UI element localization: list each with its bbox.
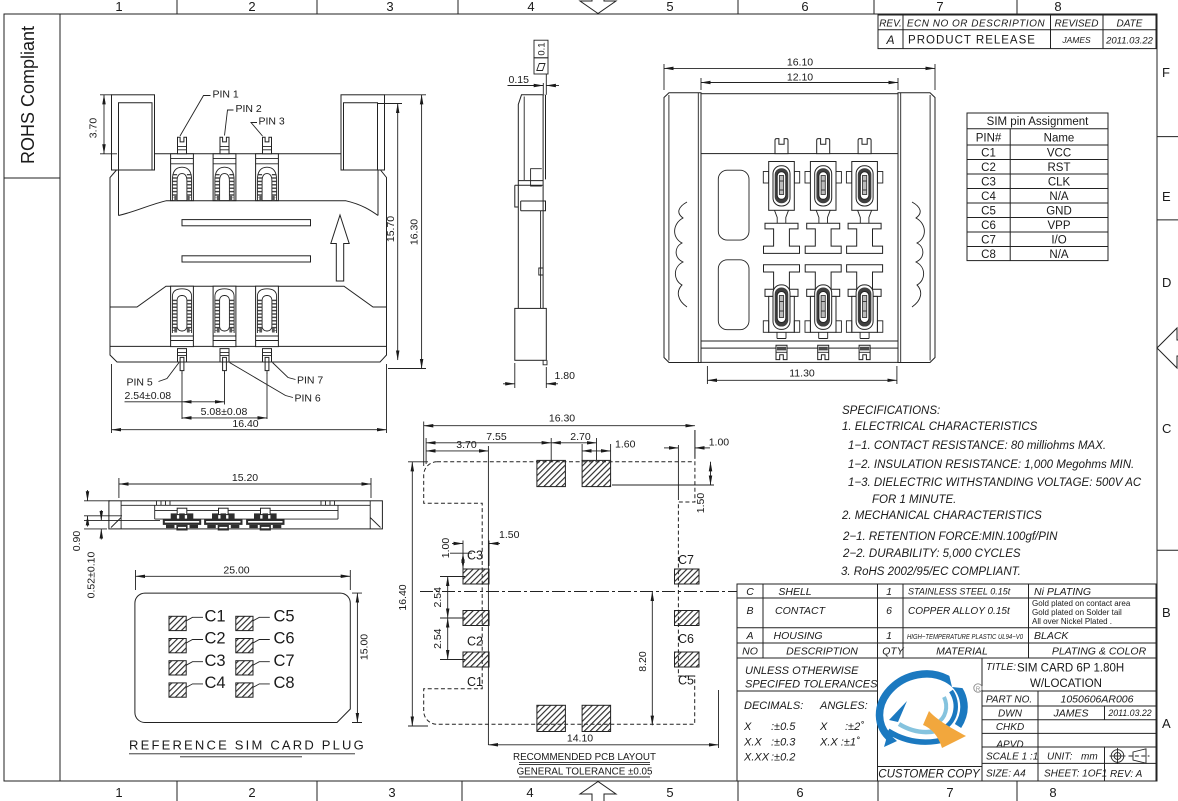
svg-text:C2: C2 — [981, 162, 996, 174]
svg-text:0.15: 0.15 — [509, 74, 530, 86]
svg-text:C6: C6 — [981, 220, 996, 232]
svg-text:5.08±0.08: 5.08±0.08 — [201, 406, 248, 418]
svg-text:15.00: 15.00 — [359, 634, 371, 660]
svg-text:GND: GND — [1046, 206, 1072, 218]
svg-text:16.30: 16.30 — [409, 219, 421, 245]
svg-text:2.70: 2.70 — [570, 431, 591, 443]
svg-text:3.70: 3.70 — [456, 439, 477, 451]
svg-text:COPPER ALLOY 0.15t: COPPER ALLOY 0.15t — [908, 606, 1011, 617]
svg-text:C5: C5 — [678, 674, 694, 688]
svg-text:C1: C1 — [205, 608, 226, 626]
svg-text:DECIMALS:: DECIMALS: — [744, 700, 803, 712]
svg-text:3.70: 3.70 — [88, 118, 100, 139]
svg-text:0.90: 0.90 — [71, 531, 83, 552]
svg-text:SIM pin Assignment: SIM pin Assignment — [987, 116, 1089, 128]
svg-text:ROHS Compliant: ROHS Compliant — [18, 26, 38, 164]
svg-text:RST: RST — [1048, 162, 1071, 174]
svg-text:D: D — [1162, 275, 1171, 290]
svg-text:A: A — [745, 630, 753, 642]
svg-text:PIN 7: PIN 7 — [297, 375, 323, 387]
svg-text:PIN#: PIN# — [976, 133, 1002, 145]
svg-text:APVD: APVD — [995, 740, 1023, 751]
svg-text:GENERAL TOLERANCE ±0.05: GENERAL TOLERANCE ±0.05 — [517, 767, 653, 778]
svg-text:DWN: DWN — [998, 709, 1023, 720]
svg-text:PIN 6: PIN 6 — [295, 393, 321, 405]
svg-text:C7: C7 — [274, 652, 295, 670]
svg-text:6: 6 — [796, 785, 803, 800]
svg-text:mm: mm — [1081, 752, 1098, 763]
svg-text:BLACK: BLACK — [1034, 630, 1069, 642]
svg-text:1: 1 — [115, 0, 122, 14]
svg-text:5: 5 — [666, 0, 673, 14]
svg-text:REFERENCE SIM CARD PLUG: REFERENCE SIM CARD PLUG — [129, 738, 366, 753]
svg-text:UNLESS OTHERWISE: UNLESS OTHERWISE — [745, 665, 859, 677]
svg-text:X: X — [743, 721, 752, 733]
svg-text:RECOMMENDED PCB LAYOUT: RECOMMENDED PCB LAYOUT — [513, 752, 656, 763]
svg-text:DATE: DATE — [1117, 19, 1143, 30]
svg-text:JAMES: JAMES — [1061, 35, 1091, 45]
svg-text:C: C — [1162, 421, 1171, 436]
svg-text:1.50: 1.50 — [695, 493, 707, 514]
svg-text:11.30: 11.30 — [789, 368, 815, 380]
svg-text:C8: C8 — [274, 674, 295, 692]
svg-text:CHKD: CHKD — [996, 722, 1024, 733]
svg-text:TITLE:: TITLE: — [986, 662, 1016, 673]
svg-text:REVISED: REVISED — [1055, 19, 1099, 30]
svg-text:6: 6 — [886, 605, 892, 617]
svg-text:2011.03.22: 2011.03.22 — [1107, 708, 1151, 718]
svg-text:PIN 3: PIN 3 — [259, 116, 285, 128]
svg-text:B: B — [746, 605, 753, 617]
svg-text:16.40: 16.40 — [397, 584, 409, 610]
svg-text:Name: Name — [1044, 133, 1075, 145]
svg-text:HIGH−TEMPERATURE PLASTIC UL94−: HIGH−TEMPERATURE PLASTIC UL94−V0 — [907, 632, 1024, 641]
svg-text:C7: C7 — [678, 553, 694, 567]
svg-text:16.10: 16.10 — [787, 57, 813, 69]
svg-text:3. RoHS 2002/95/EC COMPLIAN: 3. RoHS 2002/95/EC COMPLIANT. — [841, 566, 1021, 578]
svg-text:NO: NO — [742, 646, 758, 658]
svg-text:A: A — [885, 33, 894, 47]
svg-text:SIM CARD 6P 1.80H: SIM CARD 6P 1.80H — [1017, 663, 1124, 675]
svg-text:W/LOCATION: W/LOCATION — [1030, 678, 1102, 690]
svg-text:C3: C3 — [205, 652, 226, 670]
svg-text:7: 7 — [946, 785, 953, 800]
svg-text:PRODUCT RELEASE: PRODUCT RELEASE — [908, 35, 1036, 47]
svg-text:UNIT:: UNIT: — [1047, 752, 1073, 763]
svg-text:X: X — [819, 721, 828, 733]
svg-text:REV.: REV. — [879, 19, 902, 30]
svg-text:QTY: QTY — [882, 646, 905, 658]
svg-text:2. MECHANICAL CHARACTERISTIC: 2. MECHANICAL CHARACTERISTICS — [841, 510, 1042, 522]
svg-text:2: 2 — [248, 0, 255, 14]
svg-text:16.40: 16.40 — [232, 418, 258, 430]
svg-text:X.X: X.X — [743, 737, 762, 749]
svg-text:SPECIFICATIONS:: SPECIFICATIONS: — [842, 405, 940, 417]
svg-text:2.54±0.08: 2.54±0.08 — [125, 390, 172, 402]
svg-text:PIN 5: PIN 5 — [127, 377, 153, 389]
svg-text:15.20: 15.20 — [232, 472, 258, 484]
svg-text:4: 4 — [527, 0, 534, 14]
svg-text:ANGLES:: ANGLES: — [819, 700, 868, 712]
svg-text:2.54: 2.54 — [432, 587, 444, 608]
svg-text:1−3. DIELECTRIC WITHSTANDING: 1−3. DIELECTRIC WITHSTANDING VOLTAGE: 50… — [848, 477, 1142, 489]
svg-text:C1: C1 — [467, 675, 483, 689]
svg-text:CUSTOMER COPY: CUSTOMER COPY — [878, 769, 981, 781]
svg-text:1: 1 — [115, 785, 122, 800]
svg-text:1. ELECTRICAL CHARACTERISTIC: 1. ELECTRICAL CHARACTERISTICS — [842, 421, 1038, 433]
svg-text:14.10: 14.10 — [567, 733, 593, 745]
svg-text:C6: C6 — [274, 630, 295, 648]
svg-text:C2: C2 — [205, 630, 226, 648]
svg-text:C8: C8 — [981, 249, 996, 261]
svg-text:3: 3 — [386, 0, 393, 14]
svg-text:VPP: VPP — [1047, 220, 1070, 232]
svg-text:DESCRIPTION: DESCRIPTION — [786, 646, 858, 658]
svg-text:25.00: 25.00 — [223, 565, 249, 577]
svg-text:JAMES: JAMES — [1052, 708, 1088, 720]
svg-text:1.60: 1.60 — [615, 438, 636, 450]
svg-text:MATERIAL: MATERIAL — [936, 646, 988, 658]
svg-text:3: 3 — [388, 785, 395, 800]
svg-text:HOUSING: HOUSING — [773, 630, 822, 642]
svg-text::±2˚: :±2˚ — [845, 721, 864, 733]
svg-text:8.20: 8.20 — [637, 651, 649, 672]
svg-text:VCC: VCC — [1047, 148, 1071, 160]
svg-text:1050606AR006: 1050606AR006 — [1061, 694, 1134, 706]
svg-text:1−2. INSULATION RESISTANCE:: 1−2. INSULATION RESISTANCE: 1,000 Megohm… — [848, 459, 1134, 471]
svg-text:1−1. CONTACT RESISTANCE: 80: 1−1. CONTACT RESISTANCE: 80 milliohms MA… — [848, 440, 1106, 452]
svg-text:1.80: 1.80 — [555, 370, 576, 382]
svg-text:SHEET: 1OF1: SHEET: 1OF1 — [1044, 769, 1107, 780]
svg-text:5: 5 — [666, 785, 673, 800]
svg-text:C3: C3 — [981, 177, 996, 189]
svg-text:C6: C6 — [678, 632, 694, 646]
svg-text:7: 7 — [936, 0, 943, 14]
svg-text::±0.2: :±0.2 — [771, 752, 795, 764]
svg-text:B: B — [1162, 605, 1171, 620]
svg-text:PIN 2: PIN 2 — [236, 103, 262, 115]
svg-text:4: 4 — [526, 785, 533, 800]
svg-text:C: C — [746, 586, 754, 598]
svg-text:N/A: N/A — [1049, 191, 1069, 203]
svg-text:All over Nickel Plated .: All over Nickel Plated . — [1032, 617, 1112, 626]
svg-text:7.55: 7.55 — [486, 431, 507, 443]
svg-text:0.52±0.10: 0.52±0.10 — [86, 552, 98, 599]
svg-text:0.1: 0.1 — [536, 42, 547, 55]
svg-text:CONTACT: CONTACT — [775, 605, 827, 617]
svg-text:1: 1 — [886, 586, 892, 598]
svg-text:PLATING & COLOR: PLATING & COLOR — [1052, 646, 1147, 658]
svg-text:SPECIFED TOLERANCES: SPECIFED TOLERANCES — [745, 679, 878, 691]
svg-text:C5: C5 — [981, 206, 996, 218]
svg-text:1: 1 — [886, 630, 892, 642]
svg-text:N/A: N/A — [1049, 249, 1069, 261]
svg-text:C7: C7 — [981, 235, 996, 247]
svg-text:ECN NO OR DESCRIPTION: ECN NO OR DESCRIPTION — [907, 19, 1046, 30]
svg-text:Gold plated on Solder tail: Gold plated on Solder tail — [1032, 608, 1122, 617]
svg-text:CLK: CLK — [1048, 177, 1071, 189]
svg-text:SCALE 1 :1: SCALE 1 :1 — [986, 752, 1038, 763]
svg-text:C5: C5 — [274, 608, 295, 626]
svg-text::±0.5: :±0.5 — [771, 721, 796, 733]
svg-text:C3: C3 — [467, 549, 483, 563]
svg-text:SHELL: SHELL — [778, 586, 811, 598]
svg-text:X.XX: X.XX — [743, 752, 770, 764]
svg-text:6: 6 — [801, 0, 808, 14]
svg-text:2.54: 2.54 — [432, 628, 444, 649]
svg-text:C1: C1 — [981, 148, 996, 160]
svg-text:C4: C4 — [981, 191, 996, 203]
svg-text:8: 8 — [1049, 785, 1056, 800]
svg-text:2−2. DURABILITY: 5,000 CYCL: 2−2. DURABILITY: 5,000 CYCLES — [842, 548, 1021, 560]
svg-text:FOR 1 MINUTE.: FOR 1 MINUTE. — [872, 494, 956, 506]
svg-text:Gold plated on contact are: Gold plated on contact area — [1032, 599, 1131, 608]
svg-text:1.50: 1.50 — [499, 529, 520, 541]
svg-text:12.10: 12.10 — [787, 72, 813, 84]
svg-text:C2: C2 — [467, 635, 483, 649]
svg-text:E: E — [1162, 189, 1171, 204]
svg-text:REV: A: REV: A — [1110, 769, 1143, 780]
svg-text::±0.3: :±0.3 — [771, 737, 796, 749]
svg-text:1.00: 1.00 — [709, 437, 730, 449]
svg-text:A: A — [1162, 716, 1171, 731]
svg-text:16.30: 16.30 — [549, 413, 575, 425]
svg-text:15.70: 15.70 — [385, 216, 397, 242]
svg-text:C4: C4 — [205, 674, 226, 692]
svg-text:X.X :±1˚: X.X :±1˚ — [819, 737, 860, 749]
svg-text:2011.03.22: 2011.03.22 — [1105, 36, 1154, 47]
svg-text:PIN 1: PIN 1 — [213, 89, 239, 101]
svg-text:I/O: I/O — [1051, 235, 1066, 247]
svg-text:1.00: 1.00 — [440, 538, 452, 559]
svg-text:F: F — [1162, 65, 1170, 80]
svg-text:8: 8 — [1054, 0, 1061, 14]
svg-text:STAINLESS STEEL 0.15t: STAINLESS STEEL 0.15t — [908, 587, 1011, 597]
svg-text:PART NO.: PART NO. — [986, 695, 1032, 706]
svg-text:Ni PLATING: Ni PLATING — [1034, 586, 1091, 598]
svg-text:SIZE: A4: SIZE: A4 — [986, 769, 1026, 780]
svg-text:2: 2 — [248, 785, 255, 800]
svg-text:R: R — [976, 687, 981, 693]
svg-text:2−1. RETENTION FORCE:MIN.100: 2−1. RETENTION FORCE:MIN.100gf/PIN — [842, 531, 1058, 543]
